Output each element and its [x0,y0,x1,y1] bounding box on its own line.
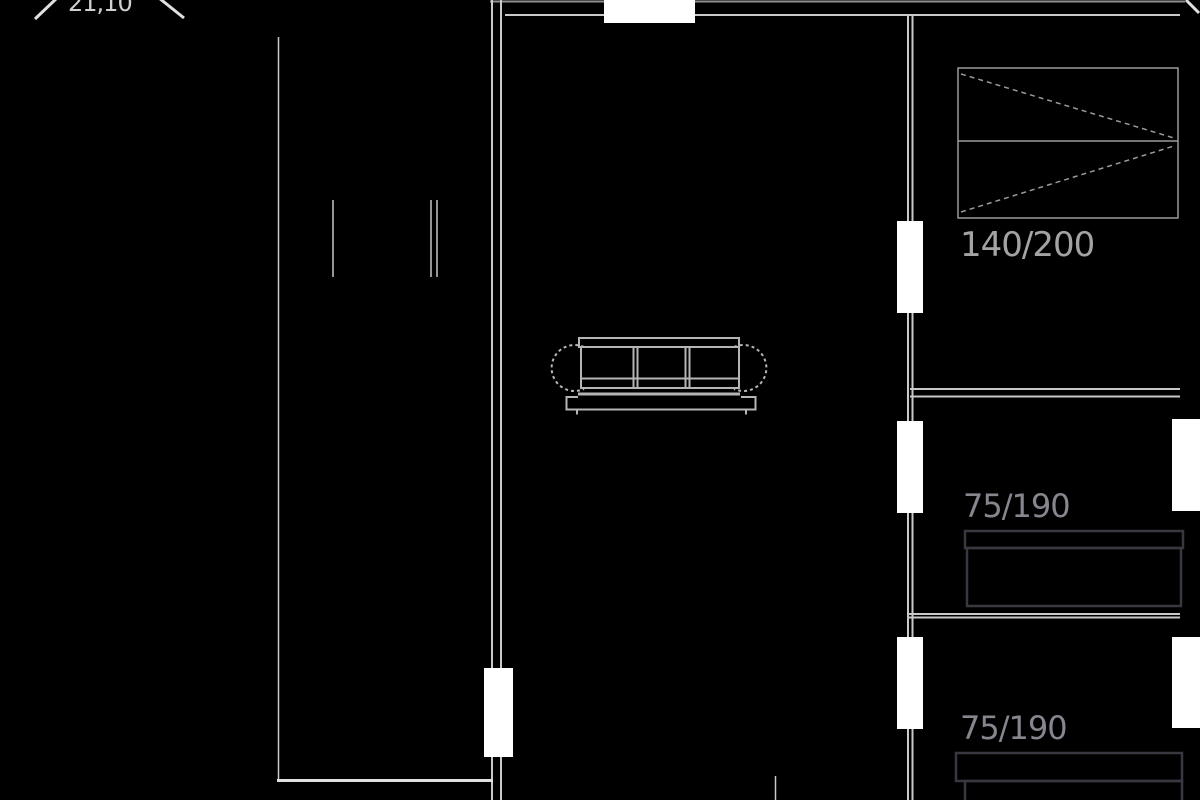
wardrobe-size-label: 140/200 [960,225,1094,265]
bed-bottom-body [965,781,1182,800]
clipped-dimension-annotation: 21,10 [35,0,184,19]
bed-middle-symbol [965,531,1183,606]
dimension-tick-right [159,0,184,18]
sofa-backrest [579,338,739,347]
size-labels: 140/200 75/190 75/190 [960,225,1094,747]
bed-middle-pillow [965,531,1183,548]
wardrobe-door-diagonal-top [961,74,1174,138]
opening-top-wall [604,0,695,23]
opening-interior-lower [897,637,923,729]
floor-plan-canvas: 21,10 140/200 75/190 75/190 [0,0,1200,800]
sofa-skirt [567,397,756,410]
wardrobe-symbol [958,68,1178,218]
bed-middle-size-label: 75/190 [963,487,1070,525]
walls [277,0,1199,800]
sofa-symbol [552,338,767,415]
clipped-dimension-text: 21,10 [68,0,132,17]
opening-interior-middle [897,421,923,513]
bed-bottom-pillow [956,753,1182,781]
bed-bottom-symbol [956,753,1182,800]
opening-central-wall [484,668,513,757]
floor-plan: 21,10 140/200 75/190 75/190 [0,0,1200,800]
bed-middle-body [967,548,1181,606]
opening-interior-upper [897,221,923,313]
opening-outer-middle [1172,419,1200,511]
bed-bottom-size-label: 75/190 [960,709,1067,747]
corner-mark-top-right [1186,0,1199,13]
wardrobe-door-diagonal-bottom [961,146,1174,212]
sofa-seat-outline [581,347,739,388]
wardrobe-outline [958,68,1178,218]
opening-outer-lower [1172,637,1200,728]
dimension-tick-left [35,0,57,19]
sofa-armrest-left [552,345,584,391]
